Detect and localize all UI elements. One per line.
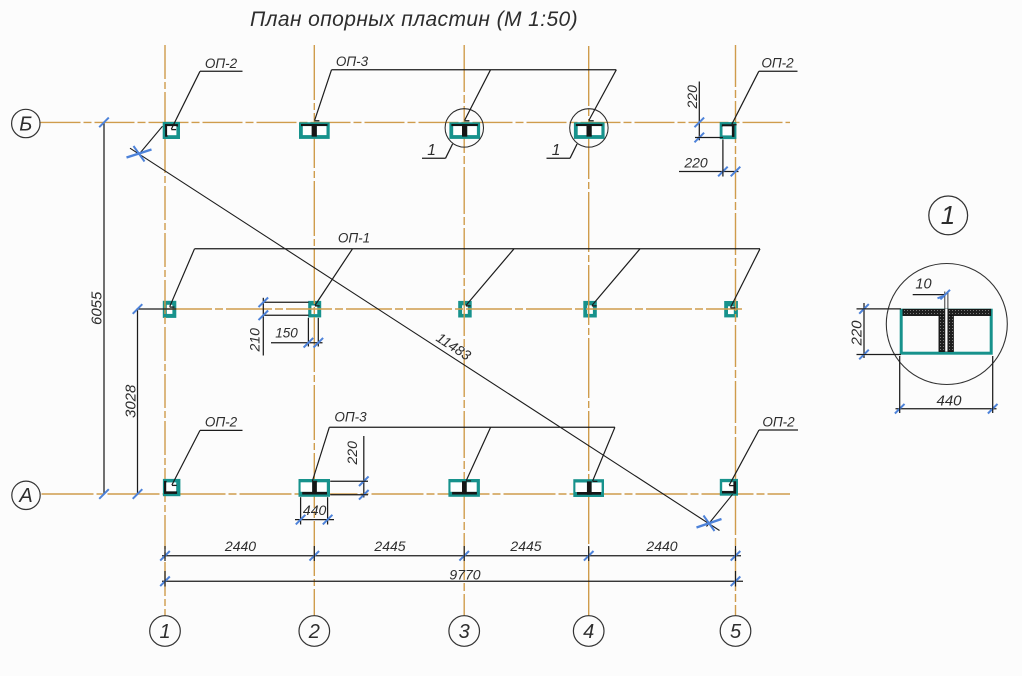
svg-text:2445: 2445 [373, 538, 405, 554]
svg-text:220: 220 [849, 320, 866, 347]
svg-text:1: 1 [159, 621, 170, 643]
svg-text:210: 210 [247, 328, 263, 353]
svg-text:1: 1 [941, 200, 955, 230]
svg-text:5: 5 [730, 621, 742, 643]
svg-text:ОП-2: ОП-2 [205, 56, 238, 71]
svg-text:3028: 3028 [123, 384, 140, 418]
svg-text:1: 1 [552, 142, 561, 159]
svg-text:2: 2 [308, 621, 320, 643]
svg-text:ОП-2: ОП-2 [761, 56, 794, 71]
svg-text:ОП-3: ОП-3 [336, 54, 369, 69]
svg-text:1: 1 [427, 142, 436, 159]
svg-text:А: А [18, 485, 32, 507]
svg-text:План опорных пластин (М 1:50): План опорных пластин (М 1:50) [250, 8, 578, 31]
svg-text:220: 220 [344, 441, 360, 466]
svg-text:ОП-2: ОП-2 [205, 415, 238, 430]
svg-text:ОП-1: ОП-1 [338, 231, 370, 246]
svg-text:220: 220 [683, 155, 708, 171]
svg-text:2440: 2440 [645, 538, 677, 554]
svg-text:150: 150 [275, 326, 298, 341]
svg-text:ОП-2: ОП-2 [762, 415, 795, 430]
svg-text:9770: 9770 [449, 567, 480, 583]
svg-text:Б: Б [19, 114, 32, 136]
svg-text:3: 3 [459, 621, 470, 643]
svg-text:440: 440 [936, 393, 962, 410]
svg-text:2440: 2440 [224, 538, 256, 554]
svg-text:10: 10 [915, 277, 931, 293]
svg-text:4: 4 [583, 621, 594, 643]
svg-text:6055: 6055 [89, 291, 106, 325]
svg-text:220: 220 [684, 85, 700, 110]
svg-text:440: 440 [303, 502, 327, 518]
svg-text:2445: 2445 [509, 538, 541, 554]
svg-text:ОП-3: ОП-3 [334, 410, 367, 425]
